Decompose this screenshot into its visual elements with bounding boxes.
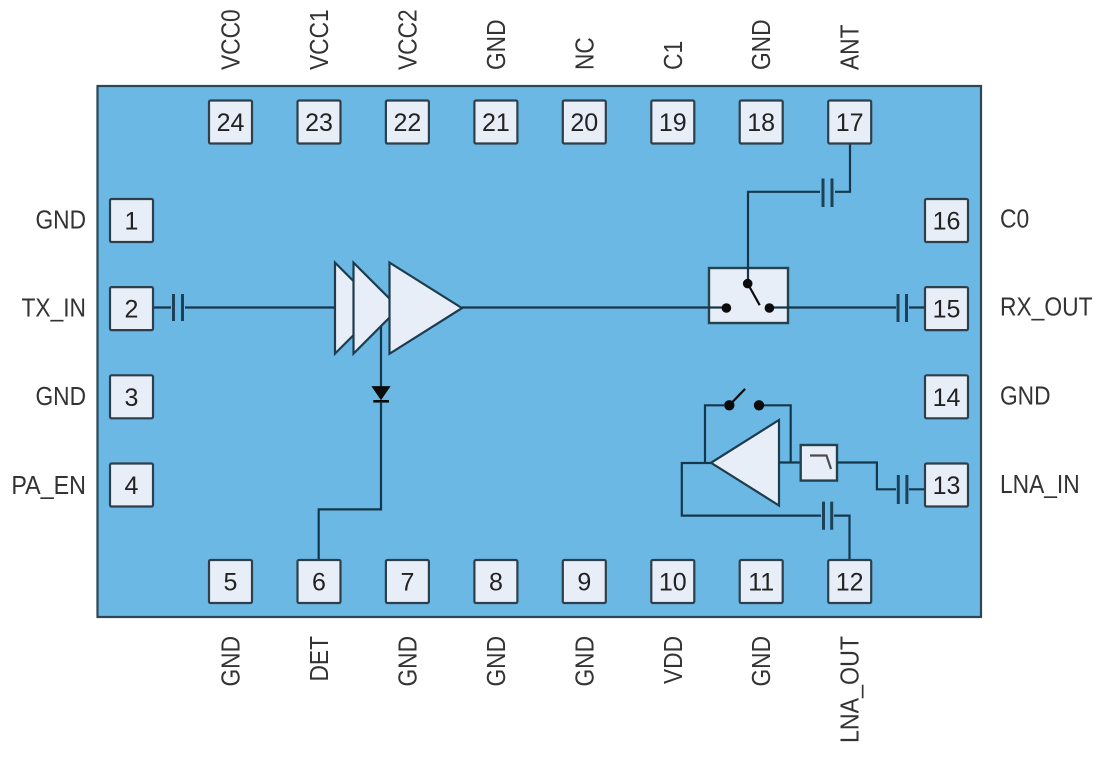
svg-text:LNA_IN: LNA_IN (1000, 469, 1080, 499)
svg-text:8: 8 (489, 569, 503, 597)
svg-text:22: 22 (393, 109, 421, 137)
svg-text:18: 18 (747, 109, 775, 137)
svg-text:17: 17 (836, 109, 864, 137)
svg-text:4: 4 (125, 472, 139, 500)
svg-text:7: 7 (400, 569, 414, 597)
svg-text:12: 12 (836, 569, 864, 597)
svg-text:LNA_OUT: LNA_OUT (835, 636, 865, 743)
svg-text:6: 6 (312, 569, 326, 597)
svg-text:VCC1: VCC1 (304, 9, 334, 70)
svg-text:GND: GND (36, 381, 87, 411)
svg-text:PA_EN: PA_EN (11, 470, 86, 500)
svg-text:VCC0: VCC0 (216, 9, 246, 70)
svg-text:21: 21 (482, 109, 510, 137)
svg-text:GND: GND (481, 20, 511, 71)
svg-text:19: 19 (659, 109, 687, 137)
svg-text:TX_IN: TX_IN (22, 293, 87, 323)
svg-text:16: 16 (933, 208, 961, 236)
svg-text:VCC2: VCC2 (392, 9, 422, 70)
svg-text:3: 3 (125, 384, 139, 412)
svg-text:20: 20 (570, 109, 598, 137)
svg-text:1: 1 (125, 208, 139, 236)
svg-text:C1: C1 (658, 41, 688, 70)
svg-text:GND: GND (216, 636, 246, 687)
svg-text:5: 5 (224, 569, 238, 597)
svg-text:11: 11 (748, 569, 774, 597)
svg-text:10: 10 (659, 569, 687, 597)
svg-text:GND: GND (392, 636, 422, 687)
svg-text:C0: C0 (1000, 204, 1029, 234)
svg-text:13: 13 (933, 472, 961, 500)
svg-text:24: 24 (217, 109, 245, 137)
svg-text:GND: GND (36, 205, 87, 235)
svg-text:RX_OUT: RX_OUT (1000, 292, 1093, 322)
svg-text:9: 9 (577, 569, 591, 597)
svg-text:GND: GND (746, 20, 776, 71)
svg-text:2: 2 (125, 296, 139, 324)
svg-text:23: 23 (305, 109, 333, 137)
svg-text:GND: GND (746, 636, 776, 687)
svg-text:14: 14 (933, 384, 961, 412)
svg-text:VDD: VDD (658, 636, 688, 684)
svg-text:DET: DET (304, 636, 334, 682)
svg-text:ANT: ANT (835, 24, 865, 70)
svg-text:GND: GND (481, 636, 511, 687)
svg-text:GND: GND (1000, 381, 1051, 411)
svg-text:15: 15 (933, 296, 961, 324)
svg-text:NC: NC (569, 37, 599, 70)
svg-text:GND: GND (569, 636, 599, 687)
